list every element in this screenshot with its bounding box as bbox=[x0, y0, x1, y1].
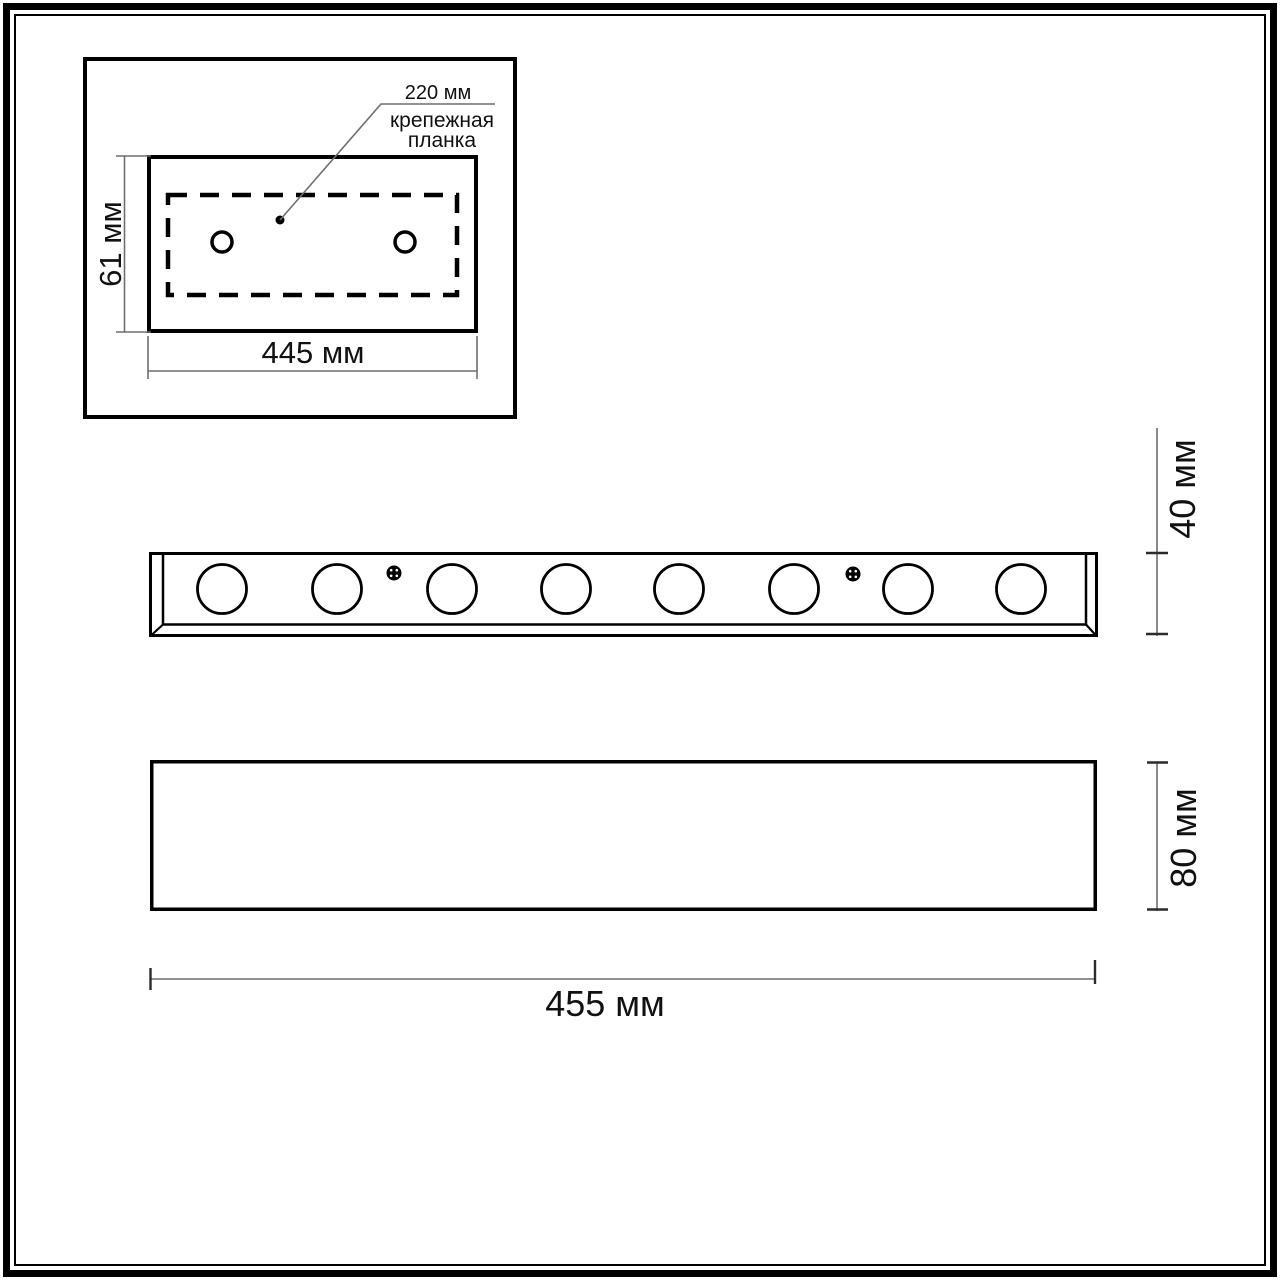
drawing-sheet: 220 мм крепежная планка 61 мм 445 мм bbox=[0, 0, 1280, 1280]
body-outline bbox=[152, 762, 1096, 910]
lamp-circle bbox=[655, 565, 704, 614]
screw-head-body bbox=[846, 567, 861, 582]
technical-drawing: 220 мм крепежная планка 61 мм 445 мм bbox=[0, 0, 1280, 1280]
lamp-circle bbox=[770, 565, 819, 614]
front-view: 40 мм bbox=[151, 428, 1204, 636]
dimension-plate-width: 445 мм bbox=[148, 335, 477, 379]
screw-head bbox=[846, 567, 861, 582]
screw-hole-dot bbox=[396, 575, 399, 578]
mounting-hole-left bbox=[212, 232, 232, 252]
bracket-name-line2: планка bbox=[408, 129, 477, 152]
lamp-circle bbox=[313, 565, 362, 614]
screw-hole-dot bbox=[849, 570, 852, 573]
dimension-bar-height: 40 мм bbox=[1146, 428, 1203, 636]
screw-hole-dot bbox=[849, 576, 852, 579]
mounting-detail-inset: 220 мм крепежная планка 61 мм 445 мм bbox=[85, 59, 515, 417]
screw-hole-dot bbox=[855, 576, 858, 579]
mounting-hole-right bbox=[395, 232, 415, 252]
bar-outer-outline bbox=[151, 554, 1097, 636]
lamp-circle bbox=[997, 565, 1046, 614]
lamp-circle bbox=[428, 565, 477, 614]
screw-head bbox=[387, 566, 402, 581]
dimension-body-height: 80 мм bbox=[1147, 762, 1204, 911]
body-height-label: 80 мм bbox=[1163, 788, 1204, 888]
lamp-circle bbox=[884, 565, 933, 614]
side-profile: 80 мм 455 мм bbox=[150, 762, 1204, 1024]
bar-bevel-right bbox=[1086, 625, 1096, 636]
bar-height-label: 40 мм bbox=[1162, 439, 1203, 539]
screw-head-body bbox=[387, 566, 402, 581]
bar-bevel-left bbox=[151, 625, 163, 636]
screw-hole-dot bbox=[855, 570, 858, 573]
plate-height-label: 61 мм bbox=[93, 201, 128, 287]
screw-hole-dot bbox=[390, 569, 393, 572]
screw-hole-dot bbox=[390, 575, 393, 578]
lamp-circle bbox=[542, 565, 591, 614]
body-width-label: 455 мм bbox=[545, 983, 665, 1024]
plate-width-label: 445 мм bbox=[262, 335, 365, 370]
dimension-body-width: 455 мм bbox=[150, 960, 1095, 1024]
bracket-offset-label: 220 мм bbox=[405, 82, 471, 104]
lamp-circle bbox=[198, 565, 247, 614]
screw-hole-dot bbox=[396, 569, 399, 572]
dimension-plate-height: 61 мм bbox=[93, 156, 151, 332]
